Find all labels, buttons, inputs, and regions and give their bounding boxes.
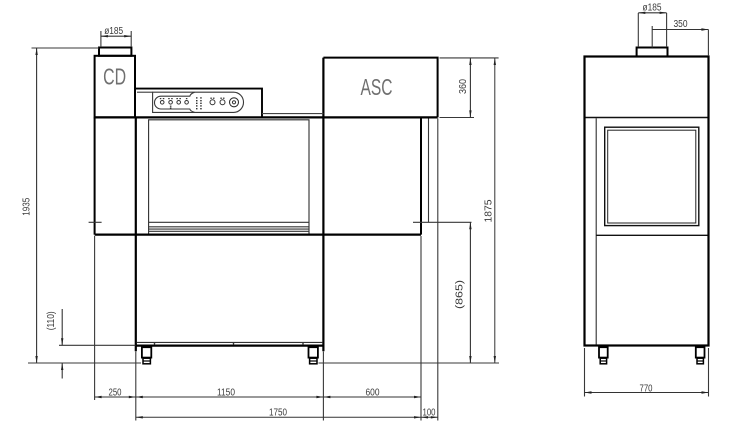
svg-text:1750: 1750: [269, 408, 287, 419]
svg-text:100: 100: [423, 408, 436, 419]
svg-text:ø185: ø185: [104, 26, 123, 37]
svg-text:1150: 1150: [217, 388, 235, 399]
svg-text:ø185: ø185: [643, 3, 662, 14]
svg-text:ASC: ASC: [361, 74, 393, 100]
svg-text:(865): (865): [454, 280, 465, 309]
svg-text:1875: 1875: [484, 199, 495, 222]
svg-text:(110): (110): [46, 311, 57, 330]
svg-text:360: 360: [458, 79, 469, 94]
svg-text:350: 350: [674, 19, 688, 30]
svg-text:770: 770: [640, 383, 653, 394]
svg-text:1935: 1935: [22, 197, 33, 215]
svg-text:CD: CD: [103, 64, 126, 90]
svg-text:250: 250: [109, 388, 122, 399]
svg-text:600: 600: [366, 388, 380, 399]
